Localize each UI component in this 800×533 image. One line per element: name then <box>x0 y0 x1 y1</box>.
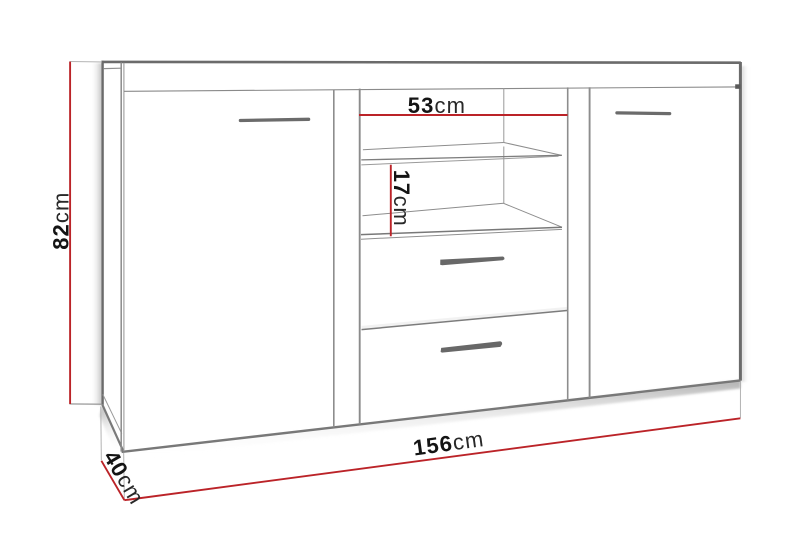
svg-text:17cm: 17cm <box>389 170 414 227</box>
svg-text:53cm: 53cm <box>408 93 466 118</box>
svg-text:156cm: 156cm <box>411 426 485 460</box>
svg-text:82cm: 82cm <box>48 192 73 250</box>
